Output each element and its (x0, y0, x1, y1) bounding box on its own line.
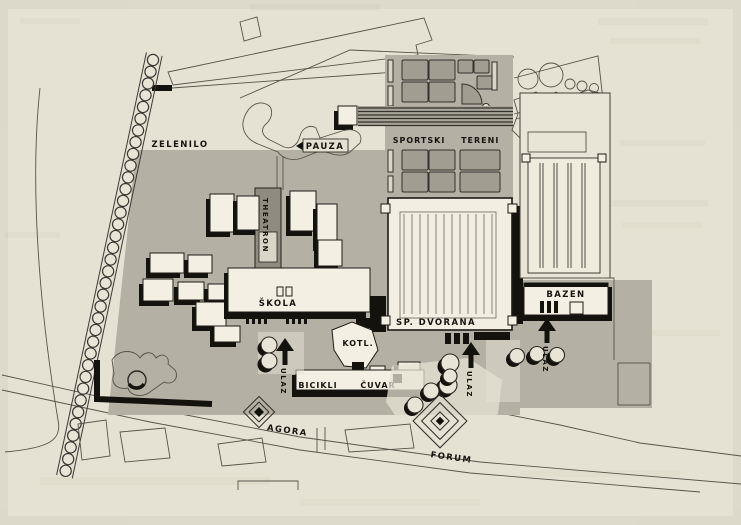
label-agora: AGORA (266, 423, 308, 439)
label-kotl: KOTL. (342, 339, 373, 348)
label-pauza: PAUZA (306, 142, 344, 152)
label-forum: FORUM (430, 450, 473, 466)
label-bazen: BAZEN (546, 290, 585, 300)
scanned-site-plan-page: SPORTSKI TERENI PAUZA (0, 0, 741, 525)
sports-hall: SP. DVORANA (381, 198, 538, 344)
label-sportski-tereni: SPORTSKI TERENI (393, 136, 500, 145)
label-ulaz-dvorana: ULAZ (465, 371, 473, 398)
label-ulaz-bazen: ULAZ (541, 346, 549, 373)
label-theatron: THEATRON (261, 198, 269, 253)
bazen-building: BAZEN (520, 283, 612, 321)
label-sp-dvorana: SP. DVORANA (396, 318, 476, 328)
label-ulaz-skola: ULAZ (279, 368, 287, 395)
label-skola: ŠKOLA (259, 297, 298, 309)
label-zelenilo: ZELENILO (151, 140, 208, 150)
label-bicikli: BICIKLI (298, 381, 337, 390)
